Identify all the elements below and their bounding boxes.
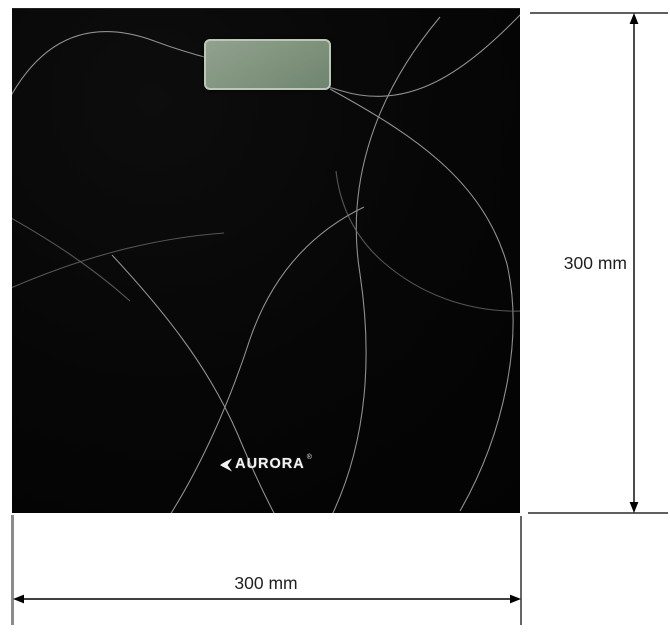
product-dimension-diagram: AURORA ® 300 mm 300 mm [0, 0, 670, 637]
arrow-down-icon [630, 502, 639, 513]
dimension-lines [0, 0, 670, 637]
arrow-up-icon [630, 13, 639, 24]
width-dimension-label: 300 mm [12, 573, 520, 593]
arrow-right-icon [510, 595, 521, 604]
arrow-left-icon [13, 595, 24, 604]
height-dimension-label: 300 mm [540, 253, 627, 273]
